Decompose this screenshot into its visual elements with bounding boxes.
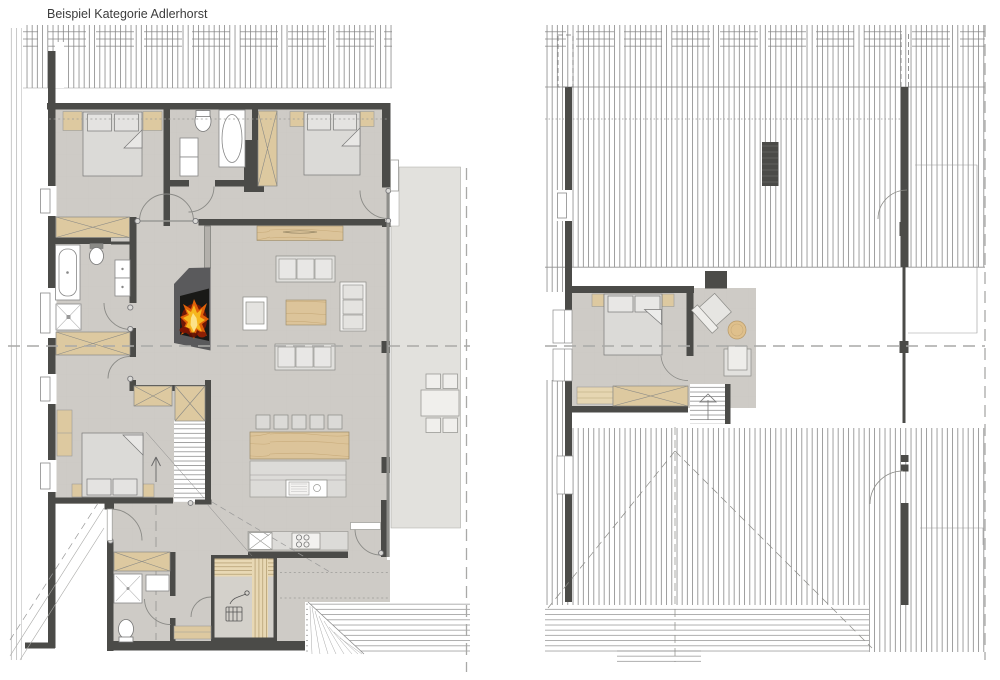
svg-text:Beispiel Kategorie Adlerhorst: Beispiel Kategorie Adlerhorst: [47, 7, 208, 21]
